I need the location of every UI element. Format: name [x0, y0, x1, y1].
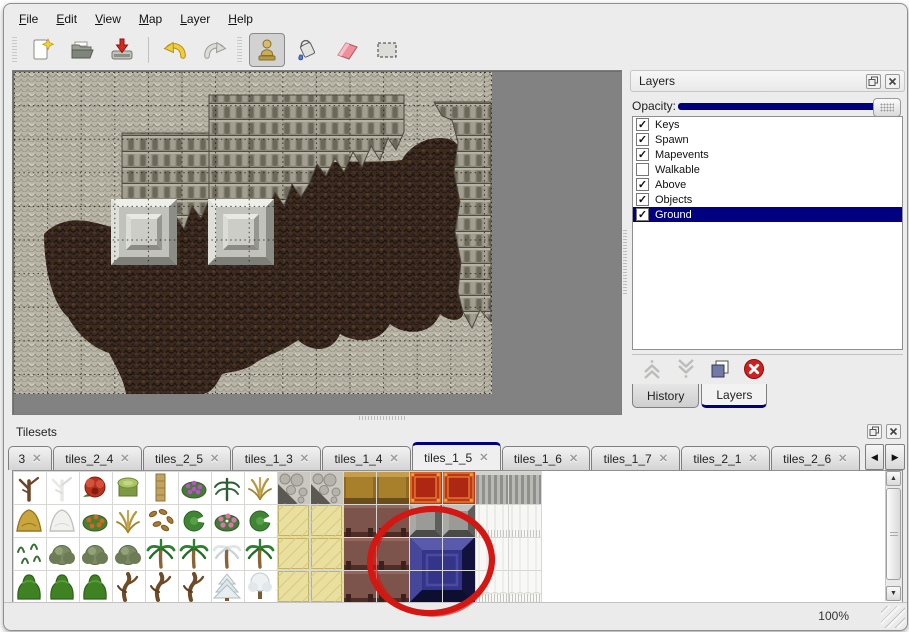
splitter-grip[interactable] [623, 230, 627, 294]
tilesets-panel-titlebar: Tilesets [8, 422, 905, 441]
tileset-scrollbar[interactable]: ▲ ▼ [885, 471, 902, 601]
close-panel-icon[interactable] [886, 424, 901, 439]
layer-row-walkable[interactable]: Walkable [633, 162, 902, 177]
menu-item-map[interactable]: Map [130, 9, 171, 29]
horizontal-splitter[interactable] [4, 414, 907, 422]
toolbar [10, 32, 407, 68]
redo-button[interactable] [197, 33, 233, 67]
tab-layers[interactable]: Layers [701, 384, 767, 408]
layers-dock: Layers Opacity: ✓Keys✓Spawn✓MapeventsWal… [630, 70, 905, 414]
layer-visibility-checkbox[interactable]: ✓ [636, 178, 649, 191]
eraser-tool-button[interactable] [329, 33, 365, 67]
menu-item-file[interactable]: File [10, 9, 47, 29]
select-tool-icon [373, 36, 401, 64]
undo-icon [161, 36, 189, 64]
menu-item-help[interactable]: Help [219, 9, 262, 29]
tab-label: tiles_1_3 [245, 452, 293, 466]
menu-bar: FileEditViewMapLayerHelp [10, 8, 262, 30]
tileset-tab-tiles_2_4[interactable]: tiles_2_4✕ [53, 446, 142, 470]
stamp-tool-icon [253, 36, 281, 64]
layer-visibility-checkbox[interactable] [636, 163, 649, 176]
tab-label: tiles_2_6 [783, 452, 831, 466]
menu-item-layer[interactable]: Layer [171, 9, 219, 29]
move-up-button[interactable] [638, 356, 666, 382]
open-folder-icon [68, 36, 96, 64]
duplicate-button[interactable] [706, 356, 734, 382]
tileset-tab-tiles_2_6[interactable]: tiles_2_6✕ [771, 446, 860, 470]
tab-history[interactable]: History [632, 384, 699, 408]
tab-label: tiles_2_4 [65, 452, 113, 466]
vertical-splitter[interactable] [622, 70, 629, 413]
layer-name: Objects [655, 194, 692, 206]
layer-list: ✓Keys✓Spawn✓MapeventsWalkable✓Above✓Obje… [632, 116, 903, 350]
close-tab-icon[interactable]: ✕ [659, 452, 668, 465]
layer-name: Mapevents [655, 149, 709, 161]
tab-label: tiles_1_4 [334, 452, 382, 466]
close-tab-icon[interactable]: ✕ [300, 452, 309, 465]
fill-tool-button[interactable] [289, 33, 325, 67]
map-canvas-svg [14, 72, 492, 394]
close-tab-icon[interactable]: ✕ [838, 452, 847, 465]
layer-row-ground[interactable]: ✓Ground [633, 207, 902, 222]
scroll-up-icon[interactable]: ▲ [886, 471, 901, 486]
layer-name: Walkable [655, 164, 700, 176]
layer-row-objects[interactable]: ✓Objects [633, 192, 902, 207]
float-panel-icon[interactable] [866, 74, 881, 89]
stone-pillar [111, 199, 177, 265]
menu-item-view[interactable]: View [86, 9, 130, 29]
opacity-slider-handle[interactable] [873, 98, 901, 117]
close-tab-icon[interactable]: ✕ [210, 452, 219, 465]
resize-grip[interactable] [881, 606, 905, 628]
scroll-down-icon[interactable]: ▼ [886, 586, 901, 601]
opacity-row: Opacity: [632, 96, 903, 116]
stamp-tool-button[interactable] [249, 33, 285, 67]
float-panel-icon[interactable] [867, 424, 882, 439]
tab-scroll-right-icon[interactable]: ▶ [885, 444, 905, 470]
app-window: FileEditViewMapLayerHelp Layers Opacity:… [3, 3, 908, 631]
layer-visibility-checkbox[interactable]: ✓ [636, 208, 649, 221]
tileset-svg [13, 471, 542, 603]
toolbar-drag-handle[interactable] [12, 37, 17, 63]
new-file-icon [28, 36, 56, 64]
layer-visibility-checkbox[interactable]: ✓ [636, 133, 649, 146]
tileset-content[interactable]: ▲ ▼ [12, 470, 903, 604]
tileset-tab-bar: 3✕tiles_2_4✕tiles_2_5✕tiles_1_3✕tiles_1_… [8, 441, 905, 470]
delete-button[interactable] [740, 356, 768, 382]
layer-row-above[interactable]: ✓Above [633, 177, 902, 192]
layers-panel-title: Layers [631, 74, 866, 88]
close-tab-icon[interactable]: ✕ [479, 451, 488, 464]
status-bar: 100% [4, 602, 907, 630]
layer-row-mapevents[interactable]: ✓Mapevents [633, 147, 902, 162]
close-panel-icon[interactable] [885, 74, 900, 89]
move-down-icon [673, 356, 699, 382]
opacity-label: Opacity: [632, 99, 678, 113]
save-icon [108, 36, 136, 64]
layer-name: Ground [655, 209, 692, 221]
close-tab-icon[interactable]: ✕ [389, 452, 398, 465]
layer-name: Spawn [655, 134, 689, 146]
tileset-tab-tiles_2_1[interactable]: tiles_2_1✕ [681, 446, 770, 470]
tab-label: tiles_1_5 [424, 451, 472, 465]
layer-name: Keys [655, 119, 679, 131]
undo-button[interactable] [157, 33, 193, 67]
tab-label: tiles_1_7 [604, 452, 652, 466]
layer-row-keys[interactable]: ✓Keys [633, 117, 902, 132]
close-tab-icon[interactable]: ✕ [569, 452, 578, 465]
layer-name: Above [655, 179, 686, 191]
redo-icon [201, 36, 229, 64]
scrollbar-thumb[interactable] [886, 488, 901, 580]
tileset-tab-tiles_2_5[interactable]: tiles_2_5✕ [143, 446, 232, 470]
stone-pillar [208, 199, 274, 265]
tileset-tab-tiles_1_6[interactable]: tiles_1_6✕ [502, 446, 591, 470]
toolbar-separator [148, 37, 149, 63]
close-tab-icon[interactable]: ✕ [748, 452, 757, 465]
layer-visibility-checkbox[interactable]: ✓ [636, 118, 649, 131]
tileset-image[interactable] [13, 471, 542, 608]
tilesets-panel-title: Tilesets [8, 425, 867, 439]
splitter-grip[interactable] [359, 416, 405, 420]
open-folder-button[interactable] [64, 33, 100, 67]
tab-label: tiles_2_5 [155, 452, 203, 466]
tilesets-dock: Tilesets 3✕tiles_2_4✕tiles_2_5✕tiles_1_3… [8, 422, 905, 604]
move-up-icon [639, 356, 665, 382]
tileset-tab-tiles_1_4[interactable]: tiles_1_4✕ [322, 446, 411, 470]
map-render[interactable] [14, 72, 492, 399]
duplicate-icon [707, 356, 733, 382]
tileset-tab-tiles_1_7[interactable]: tiles_1_7✕ [591, 446, 680, 470]
tab-label: 3 [19, 452, 26, 466]
toolbar-drag-handle[interactable] [237, 37, 242, 63]
eraser-tool-icon [333, 36, 361, 64]
opacity-slider[interactable] [678, 103, 899, 110]
delete-icon [741, 356, 767, 382]
new-file-button[interactable] [24, 33, 60, 67]
layer-actions [632, 354, 903, 383]
tileset-tab-tiles_1_5[interactable]: tiles_1_5✕ [412, 442, 501, 470]
zoom-level: 100% [818, 609, 849, 623]
dock-bottom-tabs: HistoryLayers [632, 384, 769, 413]
close-tab-icon[interactable]: ✕ [120, 452, 129, 465]
layer-visibility-checkbox[interactable]: ✓ [636, 193, 649, 206]
tab-label: tiles_1_6 [514, 452, 562, 466]
move-down-button[interactable] [672, 356, 700, 382]
layer-visibility-checkbox[interactable]: ✓ [636, 148, 649, 161]
tab-scroll-left-icon[interactable]: ◀ [865, 444, 885, 470]
menu-item-edit[interactable]: Edit [47, 9, 86, 29]
map-canvas[interactable] [12, 70, 622, 415]
tab-label: tiles_2_1 [693, 452, 741, 466]
save-button[interactable] [104, 33, 140, 67]
tileset-tab-tiles_1_3[interactable]: tiles_1_3✕ [232, 446, 321, 470]
close-tab-icon[interactable]: ✕ [32, 452, 41, 465]
fill-tool-icon [293, 36, 321, 64]
select-tool-button[interactable] [369, 33, 405, 67]
layers-panel-titlebar: Layers [630, 70, 905, 92]
tileset-tab-3[interactable]: 3✕ [8, 446, 52, 470]
layer-row-spawn[interactable]: ✓Spawn [633, 132, 902, 147]
